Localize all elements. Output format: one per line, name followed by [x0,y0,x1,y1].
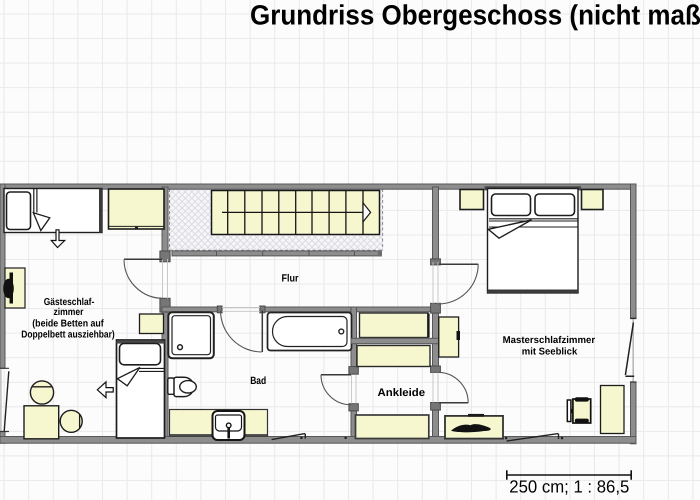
svg-text:zimmer: zimmer [54,307,84,318]
svg-text:Grundriss Obergeschoss (nicht: Grundriss Obergeschoss (nicht maßstabsge… [250,0,700,31]
svg-text:Doppelbett ausziehbar): Doppelbett ausziehbar) [21,329,115,340]
svg-text:Flur: Flur [282,273,299,285]
svg-text:250 cm; 1 : 86,5: 250 cm; 1 : 86,5 [509,476,629,496]
svg-text:mit Seeblick: mit Seeblick [522,346,578,357]
svg-text:Masterschlafzimmer: Masterschlafzimmer [503,335,596,346]
svg-text:Ankleide: Ankleide [378,387,426,399]
svg-text:Bad: Bad [250,375,266,387]
svg-text:(beide Betten auf: (beide Betten auf [32,319,104,330]
